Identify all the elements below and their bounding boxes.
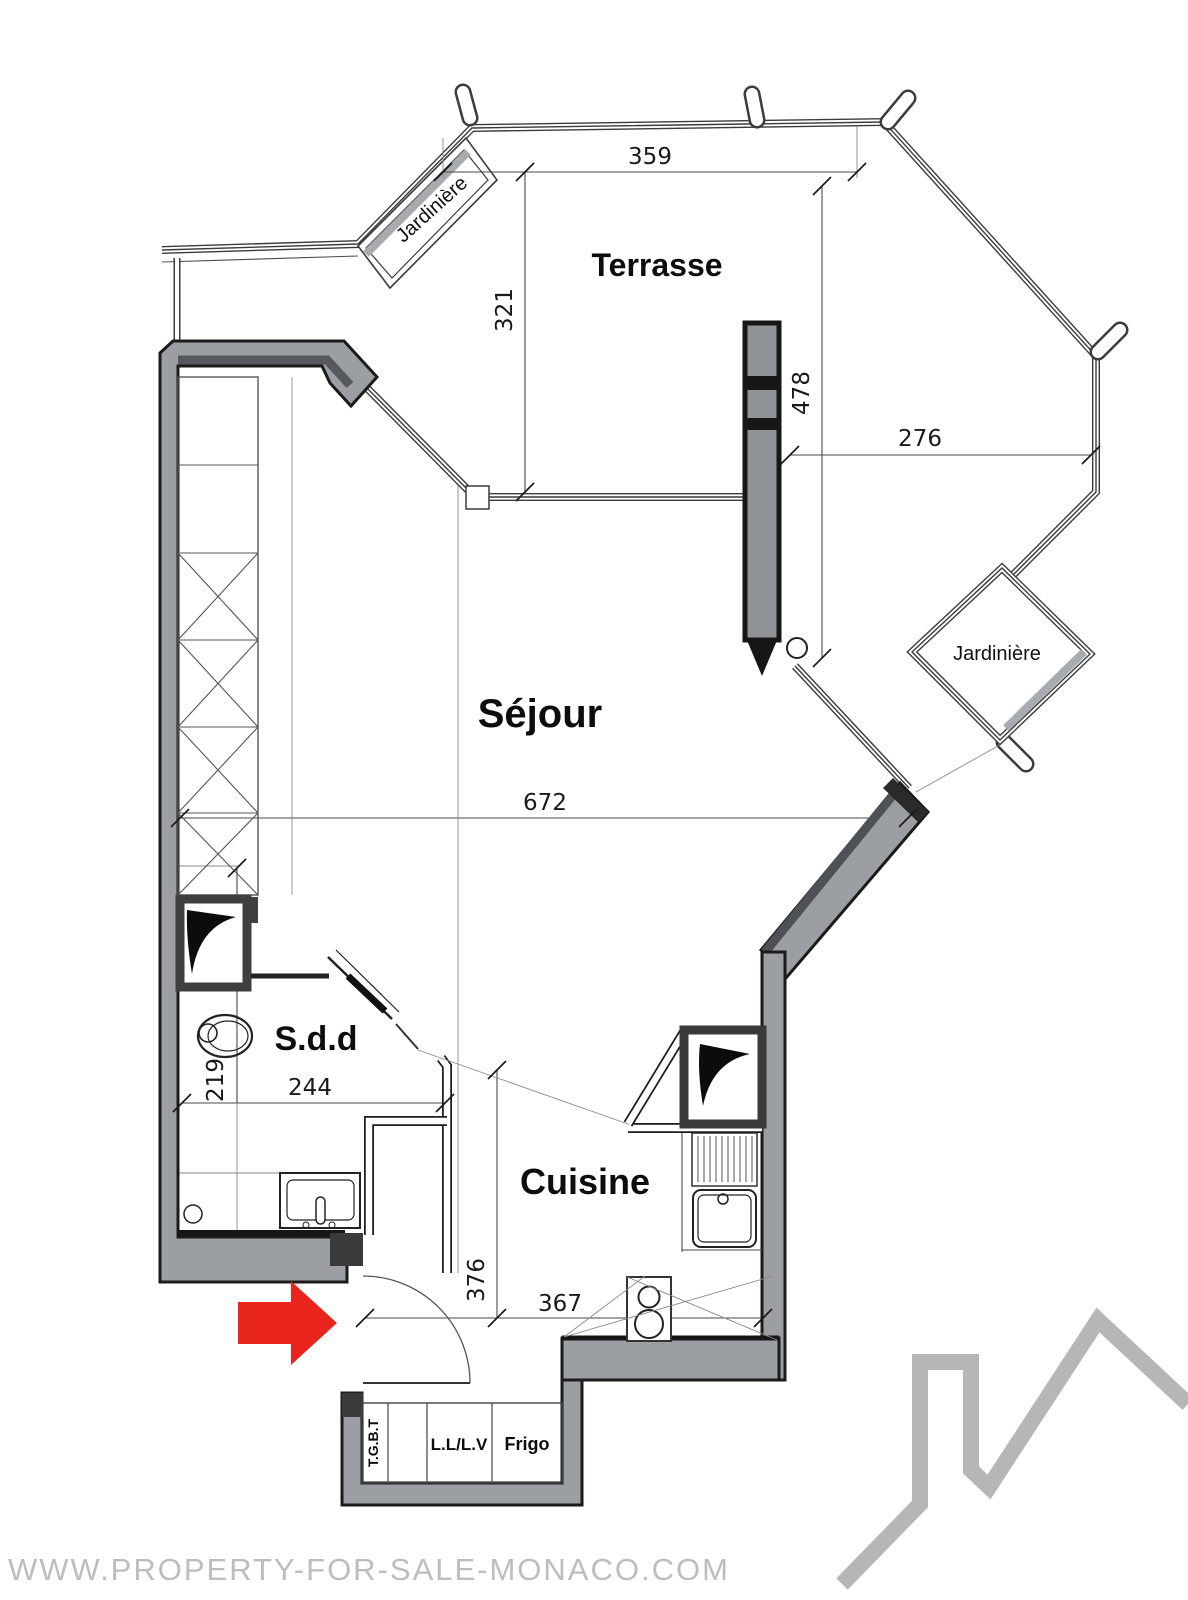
washer-label: L.L/L.V	[431, 1435, 488, 1454]
entry-door	[363, 1276, 470, 1383]
door-pivot-icon	[787, 638, 807, 658]
duct	[684, 1030, 762, 1124]
agency-house-logo-icon	[842, 1320, 1188, 1584]
dimension-321: 321	[492, 288, 518, 332]
dimension-367: 367	[538, 1291, 582, 1317]
dimension-478: 478	[789, 371, 815, 415]
wall-kitchen-south	[562, 1338, 779, 1380]
room-label-cuisine: Cuisine	[520, 1161, 650, 1202]
watermark: WWW.PROPERTY-FOR-SALE-MONACO.COM	[8, 1552, 730, 1587]
dimension-219: 219	[203, 1058, 229, 1102]
tgbt-label: T.G.B.T	[365, 1418, 381, 1467]
window-sejour-east	[795, 666, 909, 788]
terrace-railing	[162, 92, 1120, 792]
fridge-label: Frigo	[505, 1434, 550, 1454]
room-label-sejour: Séjour	[478, 692, 602, 736]
dimension-ticks	[171, 163, 1100, 1327]
dimension-376: 376	[464, 1258, 490, 1302]
room-label-sdd: S.d.d	[274, 1020, 357, 1058]
wall-left	[160, 341, 377, 1282]
dimension-244: 244	[288, 1075, 332, 1101]
vanity-sink	[280, 1173, 360, 1228]
wall-diagonal-east	[761, 783, 928, 978]
dimension-lines	[178, 126, 1091, 1318]
floor-plan-page: Terrasse Séjour S.d.d Cuisine Jardinière…	[0, 0, 1188, 1600]
dimension-276: 276	[898, 426, 942, 452]
toilet	[198, 1015, 252, 1057]
floor-drain-icon	[184, 1205, 202, 1223]
window-sejour-terrace	[357, 378, 745, 509]
floor-plan-svg: Terrasse Séjour S.d.d Cuisine Jardinière…	[0, 0, 1188, 1600]
jardiniere-right-label: Jardinière	[953, 643, 1041, 665]
dimension-359: 359	[628, 144, 672, 170]
dimension-672: 672	[523, 790, 567, 816]
closet	[178, 377, 258, 895]
entry-door-arc	[363, 1276, 470, 1383]
kitchen-sink	[692, 1133, 757, 1247]
entry-arrow-icon	[238, 1281, 337, 1365]
door-jamb	[330, 1233, 363, 1266]
room-label-terrasse: Terrasse	[591, 247, 722, 283]
